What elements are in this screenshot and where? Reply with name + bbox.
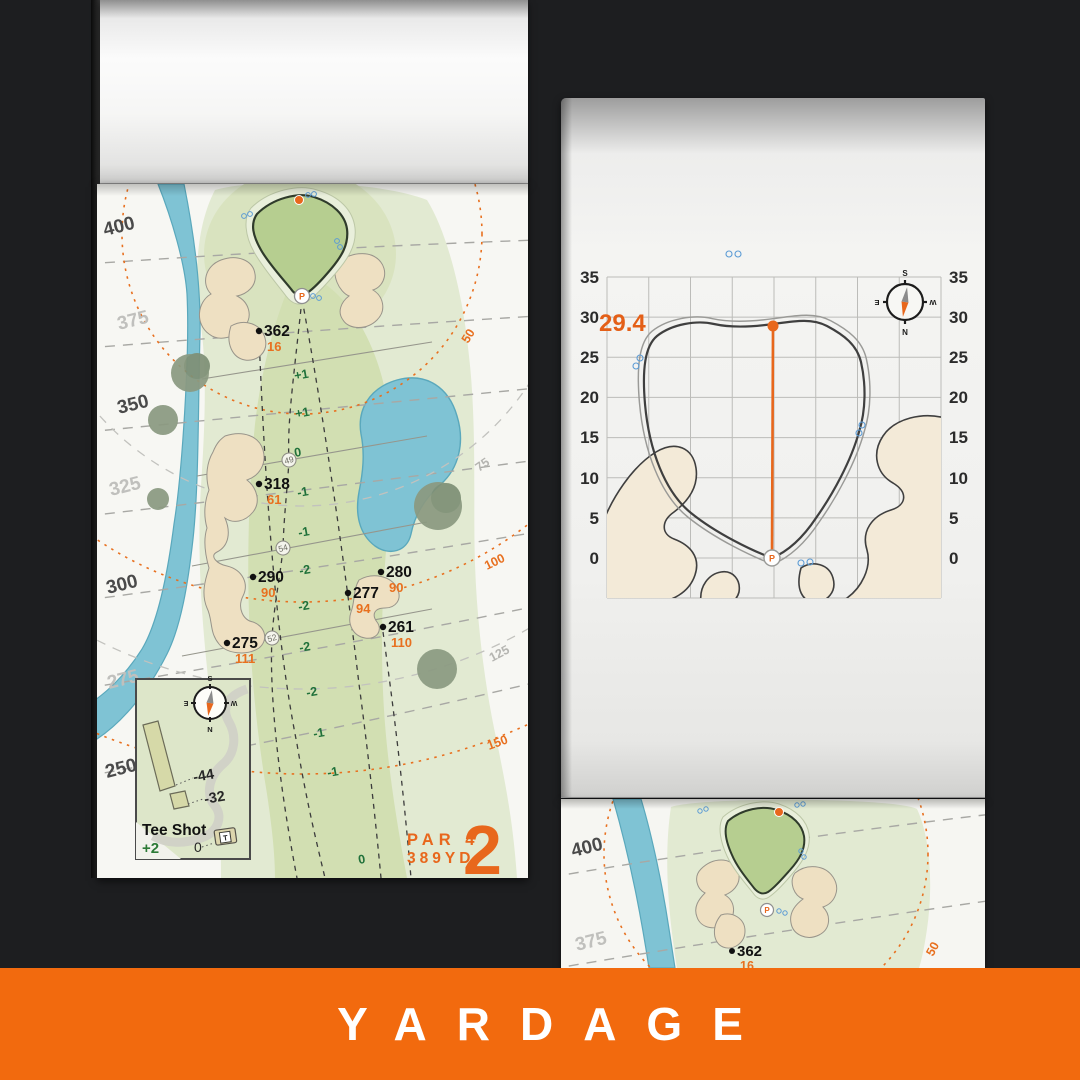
carry-value: 318 xyxy=(264,476,290,493)
carry-value: 275 xyxy=(232,635,258,652)
arc-label: 75 xyxy=(473,455,492,474)
hole-map-page: P 49 54 52 xyxy=(97,184,528,878)
slope-number: +1 xyxy=(293,367,310,383)
to-pin-value: 90 xyxy=(261,585,275,600)
to-pin-value: 61 xyxy=(267,492,281,507)
pin-label: P xyxy=(764,906,770,915)
to-pin-value: 16 xyxy=(740,959,754,968)
preview-hole-map: P 362 16 400 375 50 xyxy=(561,799,985,968)
to-pin-value: 94 xyxy=(356,601,371,616)
pin-label: P xyxy=(299,292,305,302)
green-back-dot xyxy=(295,196,304,205)
carry-value: 290 xyxy=(258,569,284,586)
tick-label: 10 xyxy=(580,469,599,488)
tick-label: 10 xyxy=(949,469,968,488)
tick-label: 5 xyxy=(590,509,599,528)
to-pin-value: 90 xyxy=(389,580,403,595)
arc-label: 100 xyxy=(482,551,507,573)
compass-icon: S N E W xyxy=(874,269,936,337)
tee-origin: 0 xyxy=(194,839,202,855)
distance-label: 325 xyxy=(107,473,143,501)
green-detail-page: 35 30 25 20 15 10 5 0 35 30 25 20 15 10 … xyxy=(561,98,985,798)
tee-shot-inset: -44 -32 Tee Shot +2 0 T xyxy=(136,674,250,859)
pin-label: P xyxy=(769,554,775,564)
carry-value: 280 xyxy=(386,564,412,581)
tick-label: 35 xyxy=(580,268,599,287)
to-pin-value: 111 xyxy=(235,651,255,666)
compass-letter-n: N xyxy=(902,328,908,337)
tee-inset-title: Tee Shot xyxy=(142,822,206,839)
compass-letter-s: S xyxy=(902,269,908,278)
tee-inset-score: +2 xyxy=(142,840,159,857)
compass-letter-w: W xyxy=(929,298,937,307)
tick-label: 25 xyxy=(580,348,599,367)
compass-letter-e: E xyxy=(183,699,188,706)
carry-value: 261 xyxy=(388,619,414,636)
tick-label: 0 xyxy=(590,549,599,568)
compass-letter-n: N xyxy=(207,725,212,734)
yardage-book-scene: P 49 54 52 xyxy=(0,0,1080,1080)
hole-number: 2 xyxy=(463,811,502,878)
tick-label: 30 xyxy=(949,308,968,327)
to-pin-value: 110 xyxy=(391,635,412,650)
next-page-preview: P 362 16 400 375 50 xyxy=(561,799,985,968)
axis-ticks-left: 35 30 25 20 15 10 5 0 xyxy=(580,268,599,568)
arc-label: 50 xyxy=(923,940,942,959)
green-outline xyxy=(638,315,870,564)
tick-label: 20 xyxy=(580,388,599,407)
carry-value: 362 xyxy=(264,323,290,340)
distance-label: 250 xyxy=(103,755,139,783)
distance-label: 375 xyxy=(573,928,609,956)
tick-label: 15 xyxy=(580,428,599,447)
tick-label: 20 xyxy=(949,388,968,407)
river xyxy=(97,184,200,744)
distance-label: 350 xyxy=(115,391,151,419)
yardage-banner: YARDAGE xyxy=(0,968,1080,1080)
distance-label: 375 xyxy=(115,307,151,335)
distance-label: 300 xyxy=(104,571,140,599)
compass-letter-e: E xyxy=(874,298,879,307)
margin-distance-labels: 400 375 xyxy=(569,834,609,956)
tick-label: 30 xyxy=(580,308,599,327)
distance-label: 400 xyxy=(569,834,605,862)
banner-title: YARDAGE xyxy=(307,997,773,1051)
compass-letter-s: S xyxy=(207,674,212,683)
green-depth-value: 29.4 xyxy=(599,310,646,337)
compass-letter-w: W xyxy=(230,699,237,706)
left-page-curl xyxy=(100,0,528,184)
pin-marker: P xyxy=(295,289,310,304)
tick-label: 0 xyxy=(949,549,958,568)
tick-label: 35 xyxy=(949,268,968,287)
carry-value: 362 xyxy=(737,943,762,960)
tee-marker-icon: T xyxy=(214,828,237,846)
axis-ticks-right: 35 30 25 20 15 10 5 0 xyxy=(949,268,968,568)
river xyxy=(613,799,675,968)
hole-map: P 49 54 52 xyxy=(97,184,528,878)
tick-label: 15 xyxy=(949,428,968,447)
carry-value: 277 xyxy=(353,585,379,602)
arc-label: 125 xyxy=(487,642,512,664)
green-detail-diagram: 35 30 25 20 15 10 5 0 35 30 25 20 15 10 … xyxy=(561,98,985,798)
to-pin-value: 16 xyxy=(267,339,281,354)
distance-label: 400 xyxy=(101,213,137,241)
pin-marker: P xyxy=(761,904,774,917)
slope-number: +1 xyxy=(294,405,311,421)
tick-label: 25 xyxy=(949,348,968,367)
tick-label: 5 xyxy=(949,509,958,528)
